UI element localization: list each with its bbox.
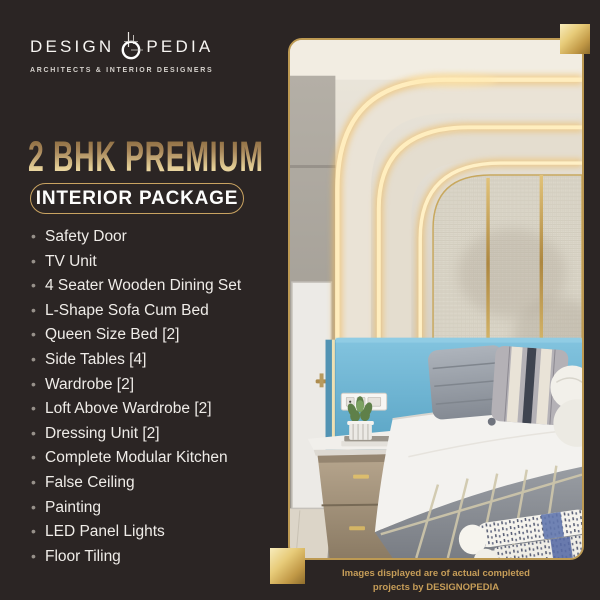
bullet-dot: •	[31, 351, 45, 367]
photo-caption: Images displayed are of actual completed…	[288, 567, 584, 596]
caption-line-2: projects by DESIGNOPEDIA	[288, 581, 584, 595]
gold-panel-trim	[486, 178, 489, 350]
list-item: • TV Unit	[31, 253, 241, 270]
list-item-label: 4 Seater Wooden Dining Set	[45, 278, 241, 294]
bullet-dot: •	[31, 326, 45, 342]
list-item: • Queen Size Bed [2]	[31, 326, 241, 343]
bullet-dot: •	[31, 548, 45, 564]
gold-corner-top-right	[560, 24, 590, 54]
bullet-dot: •	[31, 376, 45, 392]
list-item-label: Floor Tiling	[45, 549, 121, 565]
gold-corner-bottom-left	[270, 548, 305, 584]
list-item-label: Side Tables [4]	[45, 352, 146, 368]
bullet-dot: •	[31, 523, 45, 539]
list-item: • False Ceiling	[31, 474, 241, 491]
list-item: • Loft Above Wardrobe [2]	[31, 400, 241, 417]
list-item-label: Complete Modular Kitchen	[45, 450, 228, 466]
bedroom-photo-illustration	[290, 40, 582, 558]
brand-tagline: ARCHITECTS & INTERIOR DESIGNERS	[30, 67, 213, 74]
bullet-dot: •	[31, 449, 45, 465]
list-item-label: Wardrobe [2]	[45, 377, 134, 393]
list-item-label: LED Panel Lights	[45, 524, 165, 540]
list-item: • L-Shape Sofa Cum Bed	[31, 302, 241, 319]
bullet-dot: •	[31, 499, 45, 515]
bullet-dot: •	[31, 228, 45, 244]
gold-panel-trim	[540, 175, 543, 350]
list-item-label: False Ceiling	[45, 475, 135, 491]
list-item: • 4 Seater Wooden Dining Set	[31, 277, 241, 294]
bullet-dot: •	[31, 253, 45, 269]
drafting-compass-o-icon	[119, 32, 143, 62]
logo-text-pedia: PEDIA	[146, 37, 213, 57]
logo-text-design: DESIGN	[30, 37, 114, 57]
list-item: • Dressing Unit [2]	[31, 425, 241, 442]
drawer-handle	[353, 475, 369, 479]
ceiling	[290, 40, 582, 80]
list-item: • Painting	[31, 499, 241, 516]
brand-logo: DESIGN PEDIA ARCHITECTS & INTERIOR DESIG…	[30, 32, 213, 74]
list-item: • Side Tables [4]	[31, 351, 241, 368]
list-item-label: L-Shape Sofa Cum Bed	[45, 303, 209, 319]
list-item-label: Loft Above Wardrobe [2]	[45, 401, 212, 417]
headline-title: 2 BHK PREMIUM	[28, 136, 264, 179]
package-list: • Safety Door • TV Unit • 4 Seater Woode…	[31, 228, 241, 572]
bedroom-photo	[288, 38, 584, 560]
list-item: • Safety Door	[31, 228, 241, 245]
caption-line-1: Images displayed are of actual completed	[288, 567, 584, 581]
bullet-dot: •	[31, 474, 45, 490]
list-item: • LED Panel Lights	[31, 523, 241, 540]
flyer-canvas: DESIGN PEDIA ARCHITECTS & INTERIOR DESIG…	[0, 0, 600, 600]
bullet-dot: •	[31, 277, 45, 293]
list-item: • Complete Modular Kitchen	[31, 449, 241, 466]
list-item: • Wardrobe [2]	[31, 376, 241, 393]
bullet-dot: •	[31, 400, 45, 416]
list-item: • Floor Tiling	[31, 548, 241, 565]
list-item-label: TV Unit	[45, 254, 97, 270]
list-item-label: Queen Size Bed [2]	[45, 327, 179, 343]
bullet-dot: •	[31, 425, 45, 441]
list-item-label: Safety Door	[45, 229, 127, 245]
package-badge: INTERIOR PACKAGE	[30, 183, 244, 214]
drawer-handle	[349, 526, 365, 530]
list-item-label: Painting	[45, 500, 101, 516]
list-item-label: Dressing Unit [2]	[45, 426, 160, 442]
brand-logo-row: DESIGN PEDIA	[30, 32, 213, 62]
bullet-dot: •	[31, 302, 45, 318]
